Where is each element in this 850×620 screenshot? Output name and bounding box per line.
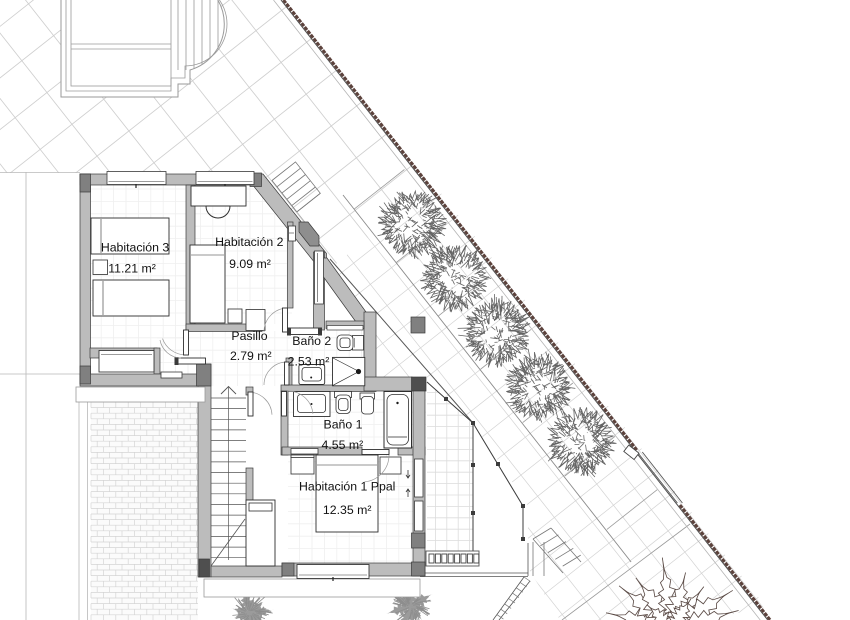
svg-text:11.21 m²: 11.21 m² xyxy=(108,262,156,276)
svg-text:4.55 m²: 4.55 m² xyxy=(322,438,364,452)
svg-text:2.79 m²: 2.79 m² xyxy=(230,349,272,363)
svg-text:12.35 m²: 12.35 m² xyxy=(323,503,372,517)
svg-text:Habitación 2: Habitación 2 xyxy=(215,235,284,249)
svg-text:9.09 m²: 9.09 m² xyxy=(229,257,271,271)
svg-text:Pasillo: Pasillo xyxy=(231,329,267,343)
svg-text:Baño 1: Baño 1 xyxy=(324,418,363,432)
svg-text:Baño 2: Baño 2 xyxy=(292,334,331,348)
svg-text:2.53 m²: 2.53 m² xyxy=(288,355,330,369)
svg-text:Habitación 1 Ppal: Habitación 1 Ppal xyxy=(299,480,395,494)
svg-text:Habitación 3: Habitación 3 xyxy=(101,241,170,255)
